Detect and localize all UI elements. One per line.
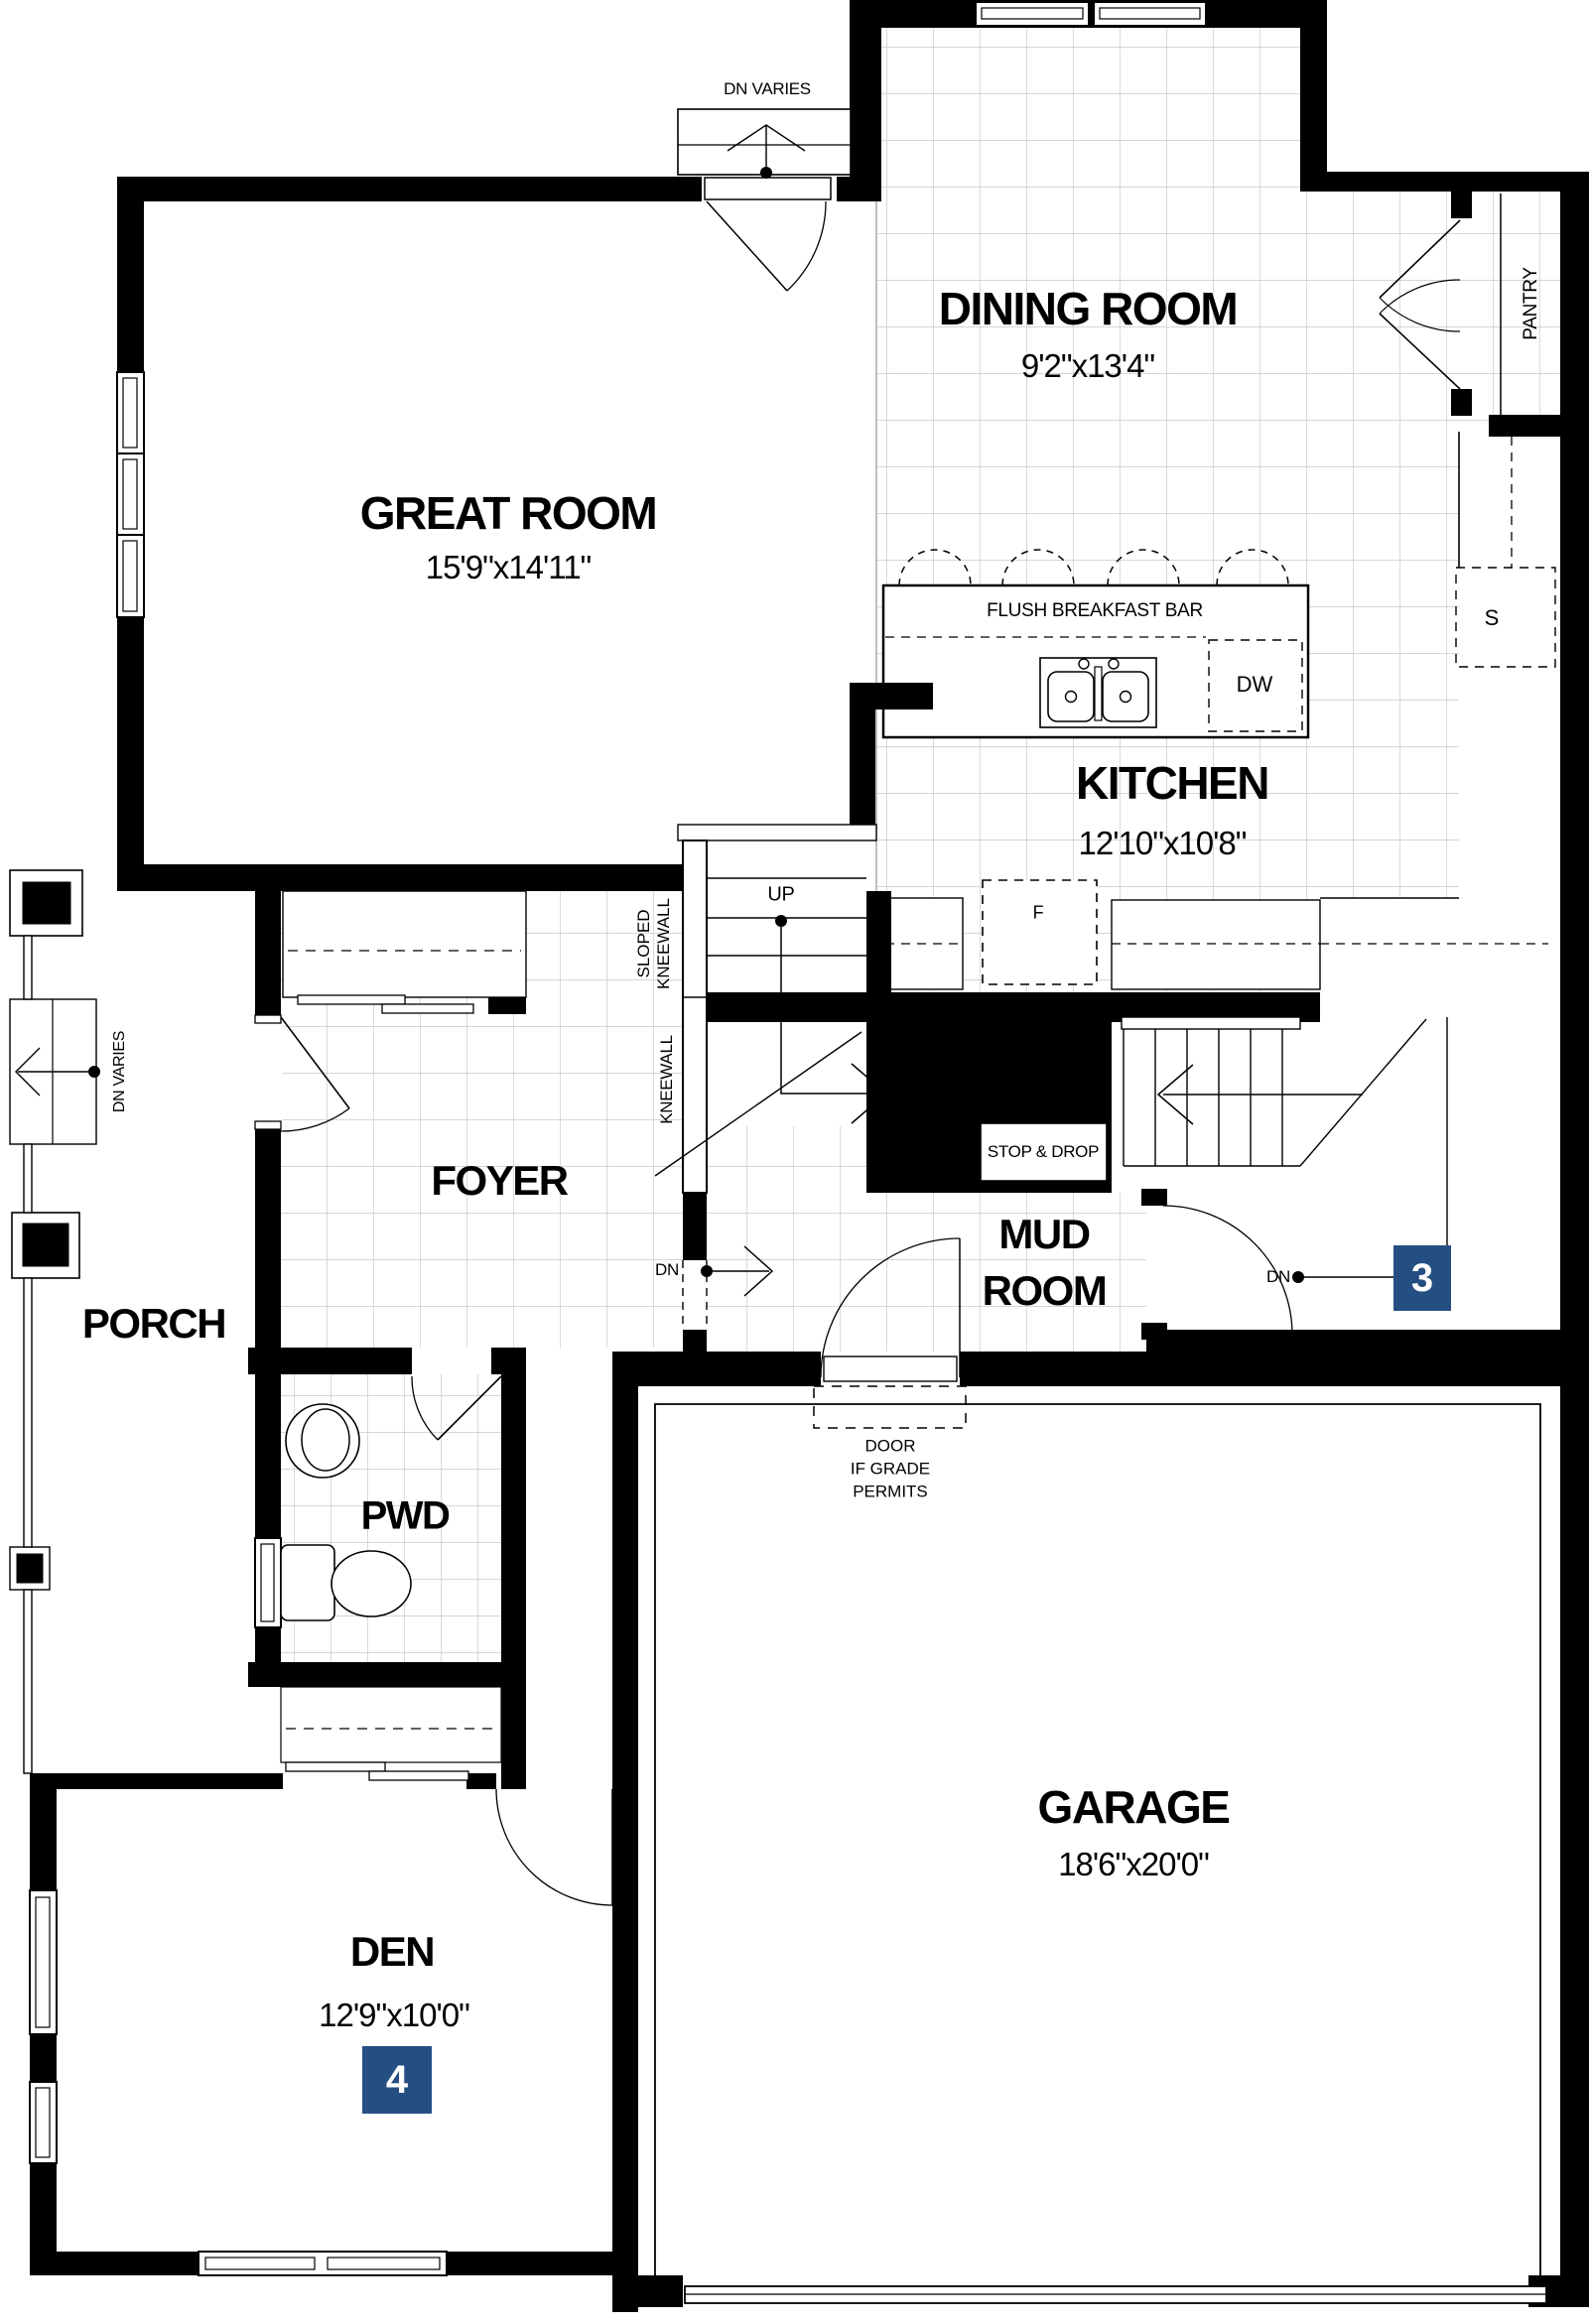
garage-dims: 18'6"x20'0" <box>1058 1846 1209 1883</box>
garage-label: GARAGE <box>1038 1780 1230 1834</box>
fridge-label: F <box>1033 903 1044 924</box>
den-dims: 12'9"x10'0" <box>319 1997 469 2034</box>
great-room-windows <box>117 372 144 617</box>
pwd-sink <box>286 1404 359 1478</box>
floor-plan: DN VARIES DINING ROOM 9'2"x13'4" GREAT R… <box>0 0 1589 2324</box>
great-room-dims: 15'9"x14'11" <box>426 549 592 586</box>
sloped-kneewall-line2: KNEEWALL <box>654 898 673 989</box>
kitchen-dims: 12'10"x10'8" <box>1078 825 1246 862</box>
den-closet <box>281 1687 501 1780</box>
mud-room-label: MUD ROOM <box>983 1206 1107 1319</box>
tiled-floors <box>281 28 1560 1662</box>
dn-basement-label: DN <box>1266 1267 1290 1287</box>
dining-room-dims: 9'2"x13'4" <box>1021 347 1154 385</box>
pantry-label: PANTRY <box>1521 267 1542 340</box>
up-label: UP <box>767 884 794 907</box>
garage-door <box>685 2286 1546 2303</box>
side-entry-door <box>702 177 837 291</box>
great-room-label: GREAT ROOM <box>360 486 656 540</box>
foyer-label: FOYER <box>431 1157 567 1205</box>
porch-post <box>10 1547 50 1590</box>
floor-plan-drawing <box>0 0 1589 2324</box>
sloped-kneewall-line1: SLOPED <box>634 910 653 978</box>
pwd-label: PWD <box>361 1494 450 1539</box>
dining-window-left <box>976 2 1089 26</box>
door-grade-line1: DOOR <box>864 1437 915 1456</box>
door-grade-label: DOOR IF GRADE PERMITS <box>851 1435 930 1503</box>
dining-room-label: DINING ROOM <box>939 282 1237 335</box>
porch-label: PORCH <box>82 1300 225 1348</box>
stop-and-drop-label: STOP & DROP <box>988 1142 1099 1162</box>
level-4-badge[interactable]: 4 <box>362 2046 432 2114</box>
kitchen-label: KITCHEN <box>1076 756 1268 810</box>
den-door <box>496 1789 612 1905</box>
d-varies-top-label: DN VARIES <box>724 79 811 99</box>
door-grade-line2: IF GRADE <box>851 1460 930 1479</box>
dn-foyer-label: DN <box>655 1260 679 1280</box>
pwd-window <box>255 1538 281 1627</box>
top-landing <box>678 109 851 179</box>
flush-breakfast-bar-label: FLUSH BREAKFAST BAR <box>987 600 1203 622</box>
den-windows-left <box>30 1890 57 2163</box>
foyer-closet <box>283 891 526 1013</box>
mud-room-line2: ROOM <box>983 1267 1107 1314</box>
sloped-kneewall-label: SLOPED KNEEWALL <box>634 898 674 989</box>
stove-label: S <box>1485 605 1500 631</box>
kneewall-label: KNEEWALL <box>657 1035 677 1124</box>
mud-room-line1: MUD <box>998 1211 1089 1257</box>
door-grade-line3: PERMITS <box>853 1483 928 1501</box>
stairs-basement <box>1122 1017 1447 1283</box>
porch-steps <box>10 999 100 1144</box>
porch-column-bottom <box>12 1213 79 1278</box>
dining-window-right <box>1094 2 1206 26</box>
porch-column-top <box>10 870 82 936</box>
den-label: DEN <box>350 1928 434 1976</box>
dishwasher-label: DW <box>1237 672 1273 698</box>
level-3-badge[interactable]: 3 <box>1393 1245 1451 1311</box>
dn-varies-porch-label: DN VARIES <box>111 1031 129 1112</box>
den-window-bottom <box>199 2252 447 2275</box>
